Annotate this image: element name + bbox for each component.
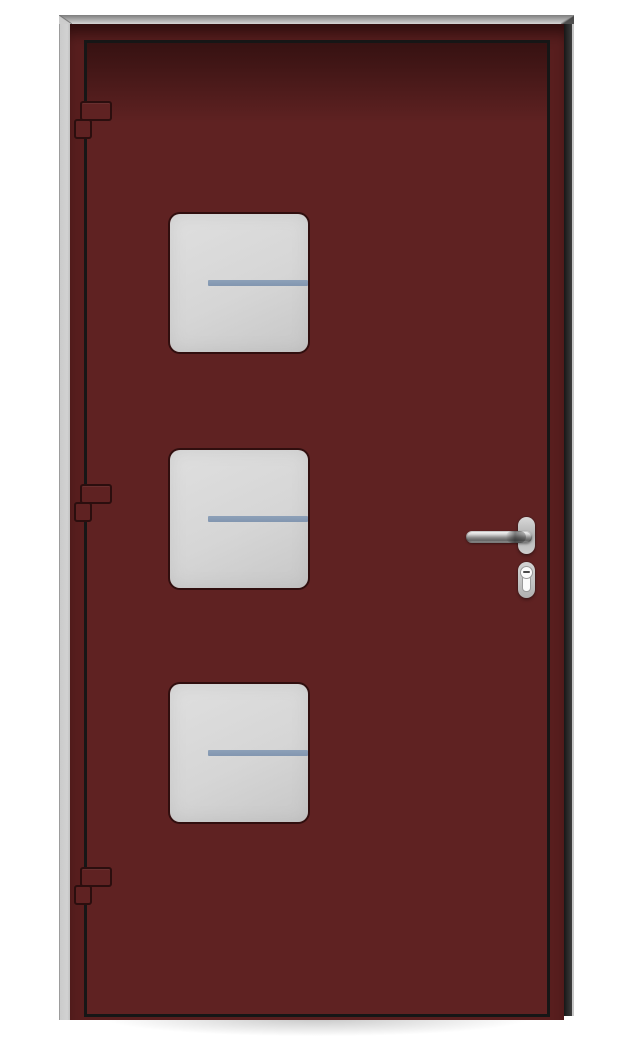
door-handle-lever [466, 531, 532, 543]
glass-panel-top [170, 214, 308, 352]
door-top-shadow [87, 43, 547, 123]
door-leaf [84, 40, 550, 1017]
hinge-plate [80, 101, 112, 121]
frame-miter-right [561, 15, 574, 24]
hinge-knuckle [74, 885, 92, 905]
glazing-bar [208, 280, 308, 286]
glass-panel-middle [170, 450, 308, 588]
keyhole-slot-icon [523, 571, 530, 573]
front-door-illustration [0, 0, 635, 1058]
glass-panel-bottom [170, 684, 308, 822]
frame-miter-left [59, 15, 72, 24]
glazing-bar [208, 516, 308, 522]
hinge-knuckle [74, 502, 92, 522]
lock-escutcheon [518, 562, 535, 598]
hinge-knuckle [74, 119, 92, 139]
handle-lever-neck [506, 531, 526, 543]
hinge-plate [80, 867, 112, 887]
frame-right-jamb [564, 23, 572, 1016]
frame-head [59, 15, 574, 24]
frame-right-edge-highlight [572, 23, 574, 1016]
hinge-plate [80, 484, 112, 504]
glazing-bar [208, 750, 308, 756]
